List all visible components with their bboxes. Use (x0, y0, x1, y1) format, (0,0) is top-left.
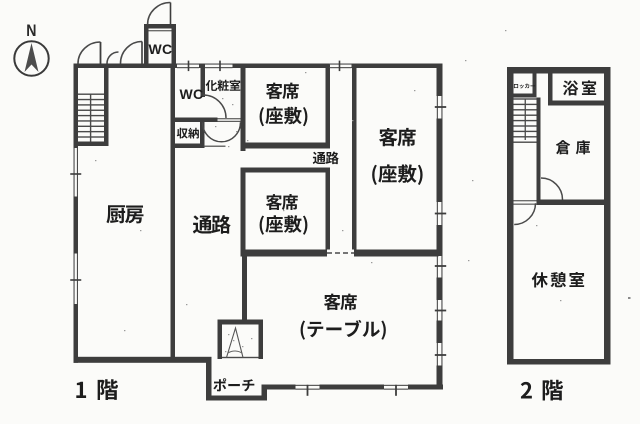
svg-text:WC: WC (149, 41, 173, 57)
svg-text:WC: WC (180, 86, 204, 102)
svg-text:N: N (26, 22, 36, 40)
